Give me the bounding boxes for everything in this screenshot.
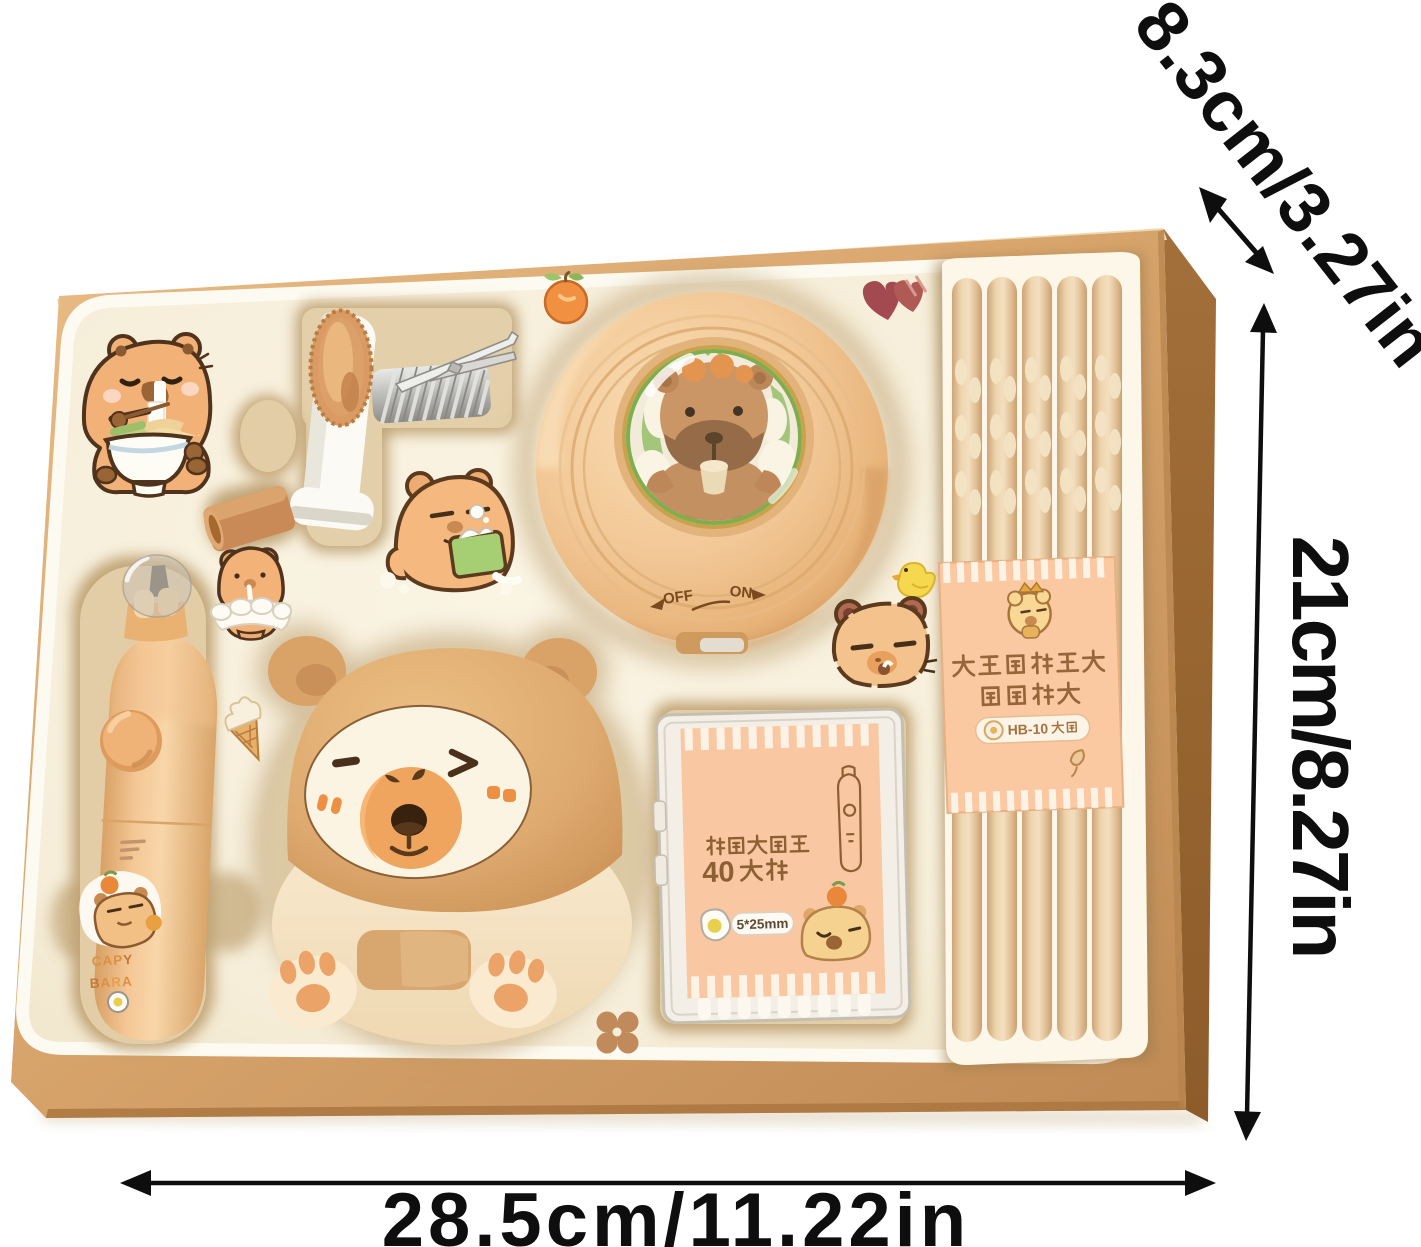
svg-text:BARA: BARA xyxy=(89,974,133,991)
svg-text:21cm/8.27in: 21cm/8.27in xyxy=(1276,536,1365,957)
svg-text:40: 40 xyxy=(702,856,735,889)
svg-text:28.5cm/11.22in: 28.5cm/11.22in xyxy=(382,1178,970,1247)
svg-text:HB-10: HB-10 xyxy=(1007,720,1048,737)
svg-text:CAPY: CAPY xyxy=(91,952,133,969)
svg-text:5*25mm: 5*25mm xyxy=(736,916,788,932)
svg-text:ON: ON xyxy=(729,583,753,602)
